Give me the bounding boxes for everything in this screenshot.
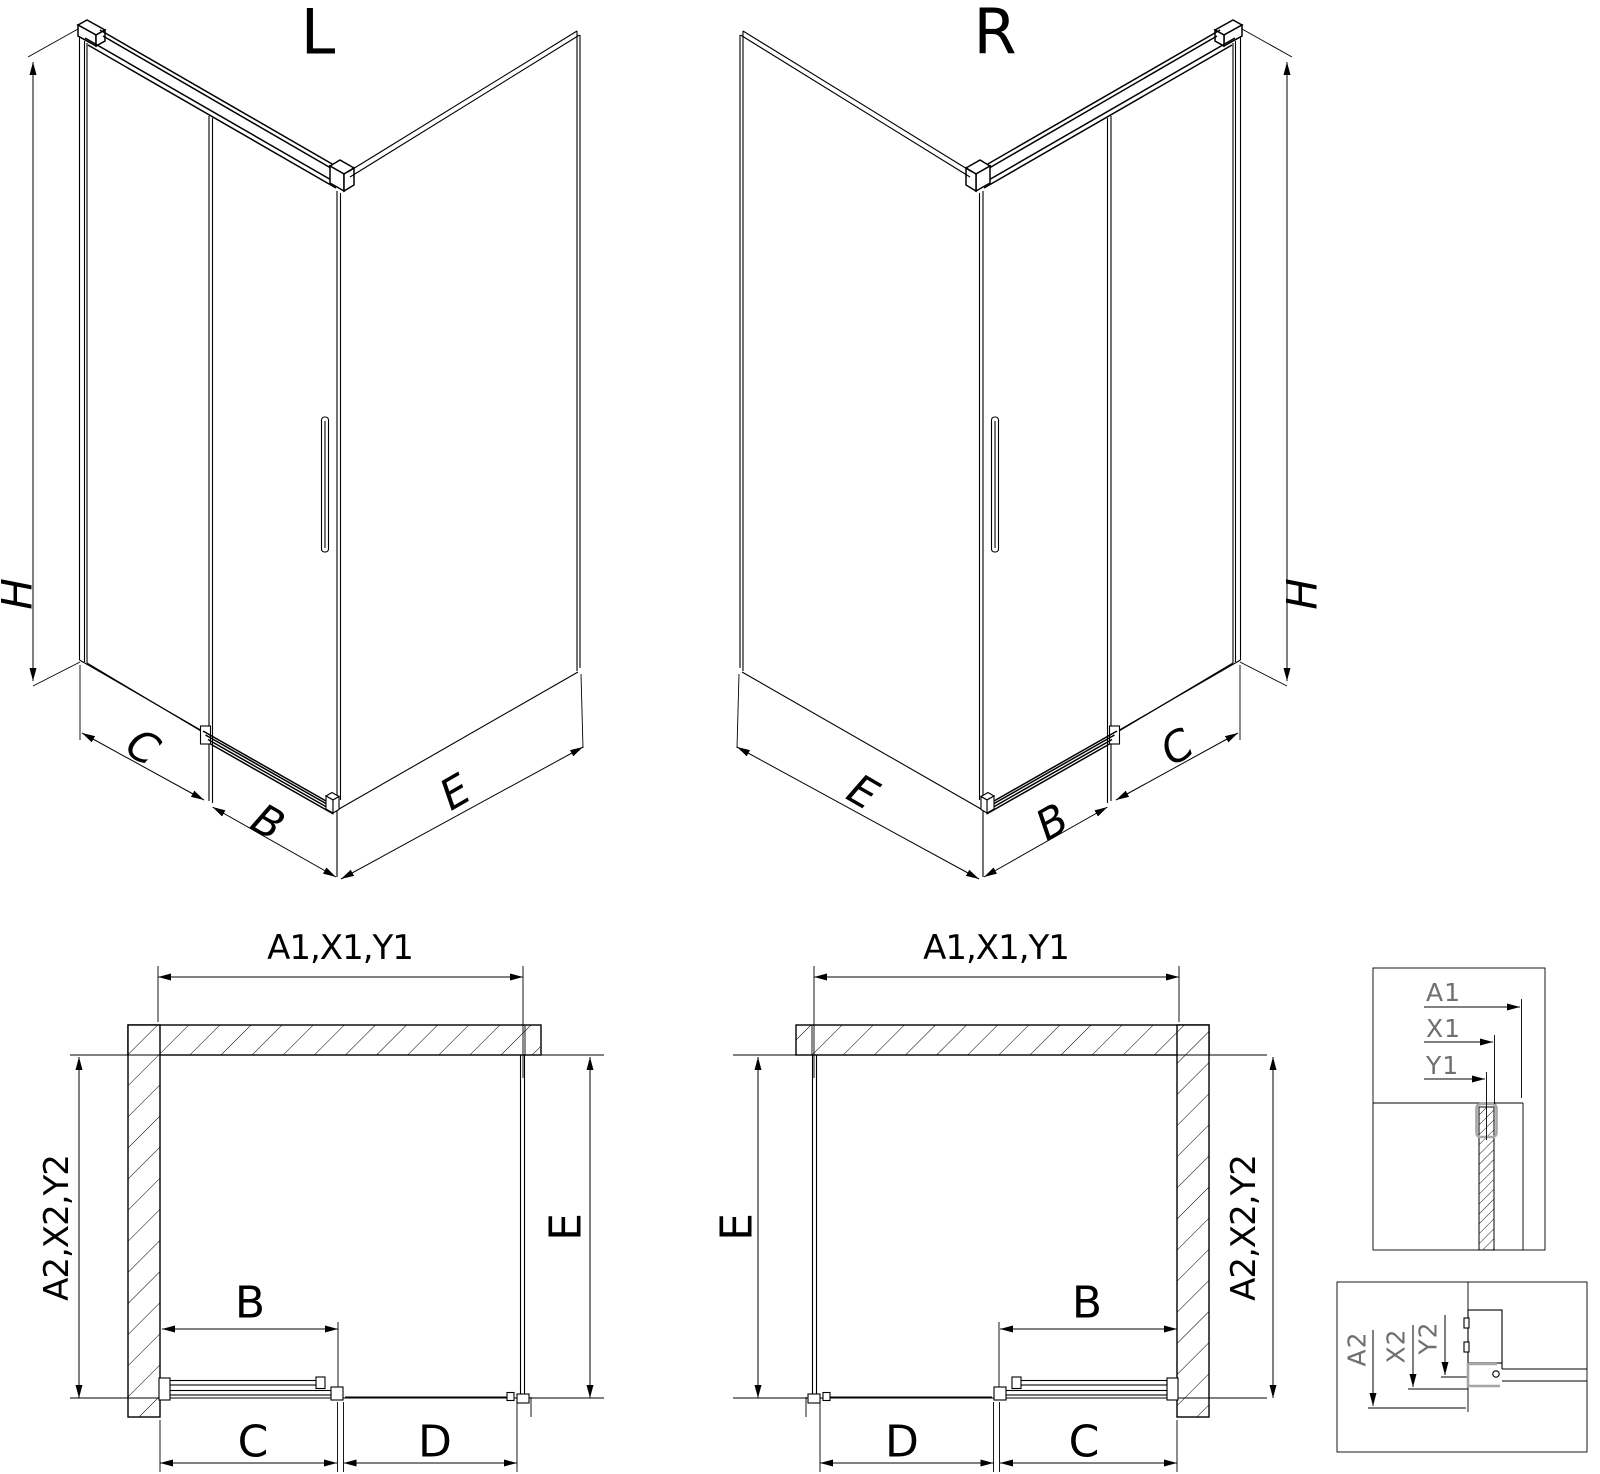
detail-x2-label: X2 xyxy=(1382,1328,1411,1363)
plan-right-dim-a1 xyxy=(814,966,1179,1078)
iso-left-e-label: E xyxy=(431,764,479,820)
plan-left-e-label: E xyxy=(541,1213,592,1241)
iso-left-c-label: C xyxy=(118,718,168,775)
plan-right-door-assembly xyxy=(823,1377,1178,1401)
plan-right-dim-b xyxy=(999,1322,1177,1398)
iso-right-e-label: E xyxy=(839,764,887,820)
iso-left-title: L xyxy=(301,0,336,69)
plan-left-side-panel xyxy=(517,1055,531,1417)
plan-right-a1-label: A1,X1,Y1 xyxy=(923,928,1069,968)
iso-right-b-label: B xyxy=(1027,794,1076,851)
detail-a2-label: A2 xyxy=(1343,1331,1372,1366)
plan-left-a1-label: A1,X1,Y1 xyxy=(267,928,413,968)
plan-left-dim-a1 xyxy=(158,966,523,1078)
plan-left-b-label: B xyxy=(235,1278,265,1329)
plan-left-c-label: C xyxy=(238,1417,269,1468)
iso-left-b-label: B xyxy=(243,794,292,851)
detail-a1-label: A1 xyxy=(1426,978,1461,1007)
plan-right-side-panel xyxy=(806,1055,820,1417)
iso-right-title: R xyxy=(973,0,1016,69)
iso-view-left: L H C B E xyxy=(0,0,583,879)
plan-view-left: A1,X1,Y1 A2,X2,Y2 E B C D xyxy=(37,928,604,1472)
iso-left-h-label: H xyxy=(0,578,42,610)
detail-y2-label: Y2 xyxy=(1414,1321,1443,1355)
plan-right-d-label: D xyxy=(885,1417,919,1468)
plan-right-e-label: E xyxy=(712,1213,763,1241)
iso-right-h-label: H xyxy=(1278,578,1327,610)
plan-right-top-wall xyxy=(796,1025,1209,1055)
plan-left-d-label: D xyxy=(418,1417,452,1468)
iso-right-c-label: C xyxy=(1152,718,1202,775)
plan-left-top-wall xyxy=(128,1025,541,1055)
plan-left-door-assembly xyxy=(159,1377,514,1401)
plan-left-dim-b xyxy=(162,1322,338,1398)
drawing-canvas: L H C B E R H E B C xyxy=(0,0,1600,1474)
plan-view-right: A1,X1,Y1 A2,X2,Y2 E B C D xyxy=(712,928,1274,1472)
plan-right-side-wall xyxy=(1177,1025,1209,1417)
plan-right-a2-label: A2,X2,Y2 xyxy=(1224,1155,1264,1301)
iso-view-right: R H E B C xyxy=(737,0,1327,879)
plan-left-side-wall xyxy=(128,1025,160,1417)
detail-top-profile: A1 X1 Y1 xyxy=(1373,968,1545,1250)
shower-enclosure-technical-drawing: L H C B E R H E B C xyxy=(0,0,1600,1474)
roller-carriage xyxy=(1464,1310,1587,1386)
detail-bottom-profile: A2 X2 Y2 xyxy=(1337,1282,1587,1452)
detail-x1-label: X1 xyxy=(1426,1014,1461,1043)
roller-wheel xyxy=(1493,1371,1499,1377)
plan-left-a2-label: A2,X2,Y2 xyxy=(37,1155,77,1301)
plan-right-c-label: C xyxy=(1069,1417,1100,1468)
detail-y1-label: Y1 xyxy=(1425,1051,1459,1080)
plan-right-b-label: B xyxy=(1072,1278,1102,1329)
